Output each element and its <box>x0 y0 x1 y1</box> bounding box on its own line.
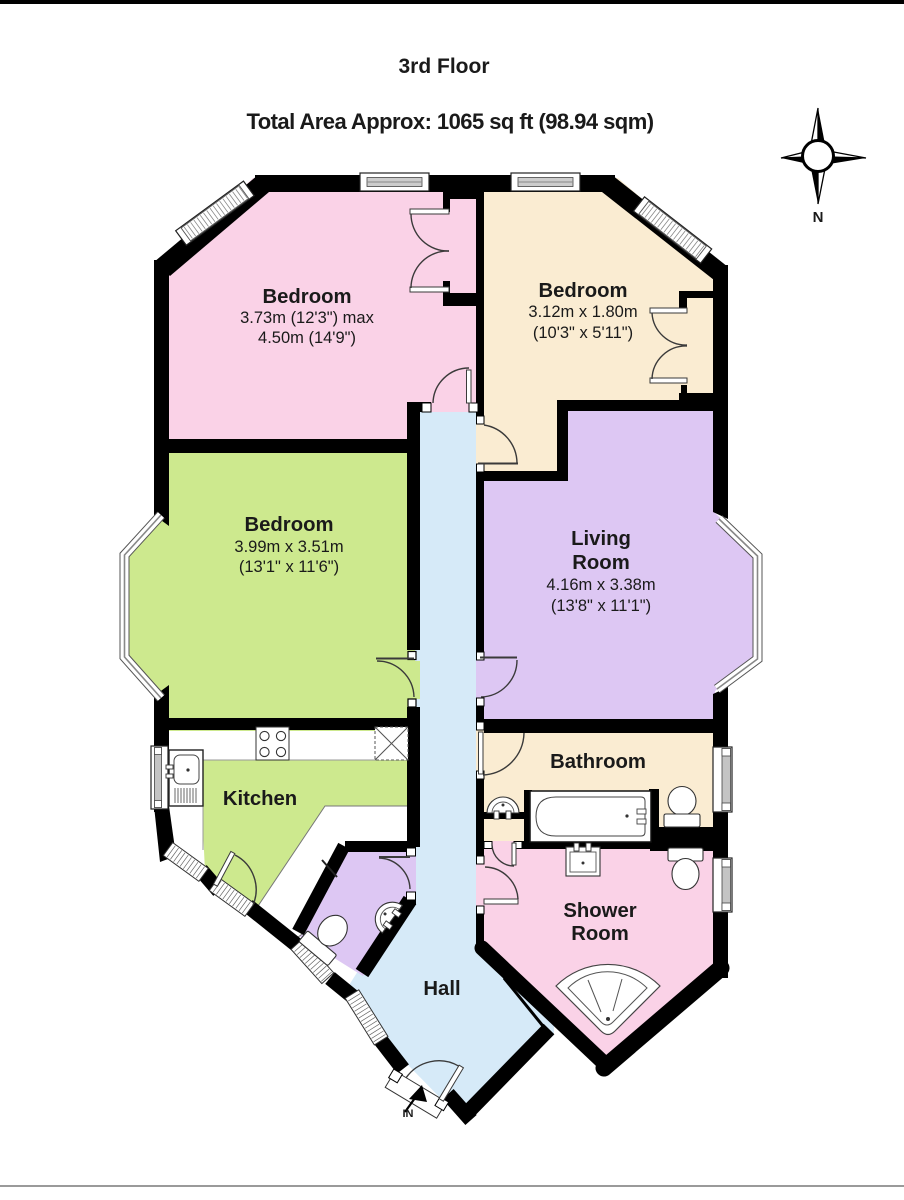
svg-text:Shower: Shower <box>563 900 636 922</box>
svg-text:Total Area Approx: 1065 sq ft: Total Area Approx: 1065 sq ft (98.94 sqm… <box>247 109 654 134</box>
svg-text:(13'1" x 11'6"): (13'1" x 11'6") <box>239 558 339 576</box>
svg-text:3.12m x 1.80m: 3.12m x 1.80m <box>528 303 637 321</box>
svg-text:4.16m x 3.38m: 4.16m x 3.38m <box>546 576 655 594</box>
svg-text:N: N <box>813 209 824 226</box>
svg-text:IN: IN <box>403 1108 414 1120</box>
svg-text:Bedroom: Bedroom <box>262 286 351 308</box>
svg-text:(10'3" x 5'11"): (10'3" x 5'11") <box>533 324 633 342</box>
svg-text:Room: Room <box>571 923 628 945</box>
svg-text:3.99m x 3.51m: 3.99m x 3.51m <box>234 538 343 556</box>
svg-text:3.73m (12'3") max: 3.73m (12'3") max <box>240 309 374 327</box>
svg-text:Living: Living <box>571 528 631 550</box>
svg-text:Bedroom: Bedroom <box>244 514 333 536</box>
svg-text:Kitchen: Kitchen <box>223 788 297 810</box>
svg-text:4.50m (14'9"): 4.50m (14'9") <box>258 329 356 347</box>
svg-text:3rd Floor: 3rd Floor <box>398 55 489 78</box>
svg-text:Room: Room <box>572 552 629 574</box>
svg-text:(13'8" x 11'1"): (13'8" x 11'1") <box>551 597 651 615</box>
svg-text:Bathroom: Bathroom <box>550 751 646 773</box>
svg-text:Bedroom: Bedroom <box>538 280 627 302</box>
svg-text:Hall: Hall <box>423 978 460 1000</box>
